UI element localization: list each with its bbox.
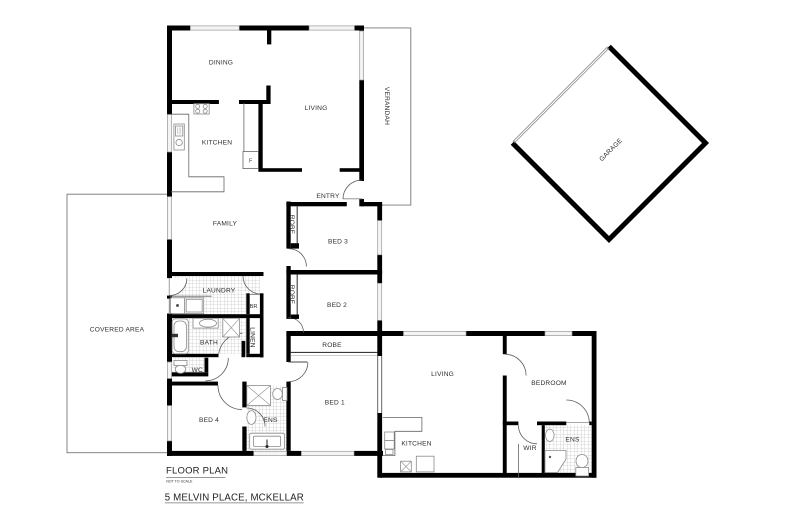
svg-text:VERANDAH: VERANDAH bbox=[383, 87, 390, 125]
svg-text:KITCHEN: KITCHEN bbox=[401, 440, 431, 447]
svg-text:BED 2: BED 2 bbox=[327, 302, 347, 309]
svg-text:LIVING: LIVING bbox=[431, 371, 454, 378]
svg-text:DINING: DINING bbox=[209, 59, 233, 66]
svg-text:ROBE: ROBE bbox=[288, 215, 295, 235]
svg-text:ENTRY: ENTRY bbox=[316, 193, 340, 200]
svg-text:F: F bbox=[249, 158, 252, 164]
svg-text:WIR: WIR bbox=[523, 445, 536, 452]
svg-text:FLOOR PLAN: FLOOR PLAN bbox=[166, 465, 228, 476]
svg-text:COVERED AREA: COVERED AREA bbox=[90, 327, 145, 334]
svg-text:FAMILY: FAMILY bbox=[213, 220, 238, 227]
svg-text:KITCHEN: KITCHEN bbox=[202, 139, 232, 146]
svg-text:ENS: ENS bbox=[263, 417, 278, 424]
svg-text:ROBE: ROBE bbox=[288, 285, 295, 305]
svg-text:BEDROOM: BEDROOM bbox=[531, 380, 566, 387]
svg-text:5 MELVIN PLACE, MCKELLAR: 5 MELVIN PLACE, MCKELLAR bbox=[165, 493, 304, 504]
svg-text:BR: BR bbox=[250, 304, 258, 310]
svg-text:ROBE: ROBE bbox=[322, 342, 342, 349]
svg-text:WC: WC bbox=[192, 367, 203, 374]
svg-text:LIVING: LIVING bbox=[305, 105, 328, 112]
svg-text:BED 4: BED 4 bbox=[199, 417, 219, 424]
svg-text:NOT TO SCALE: NOT TO SCALE bbox=[166, 480, 193, 484]
svg-text:BED 1: BED 1 bbox=[325, 399, 345, 406]
svg-text:BATH: BATH bbox=[200, 339, 218, 346]
svg-text:LAUNDRY: LAUNDRY bbox=[203, 287, 236, 294]
svg-text:LINEN: LINEN bbox=[248, 327, 255, 347]
svg-text:BED 3: BED 3 bbox=[328, 238, 348, 245]
svg-text:ENS: ENS bbox=[565, 436, 580, 443]
